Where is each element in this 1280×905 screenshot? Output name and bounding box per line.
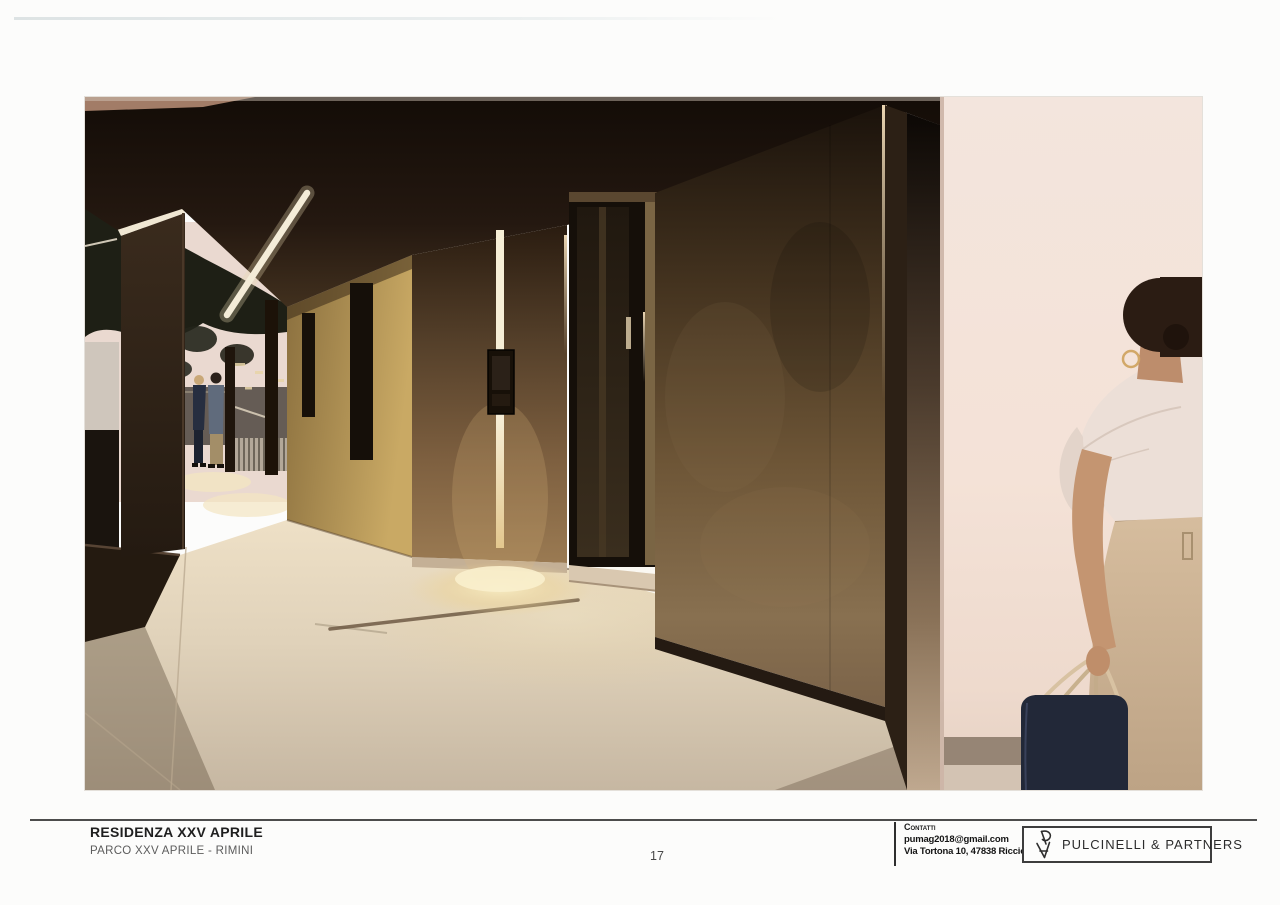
pillar-edge-highlight <box>564 235 567 405</box>
window-recess <box>302 313 315 417</box>
gate-post <box>265 300 278 475</box>
vertical-light-strip-upper <box>496 230 504 352</box>
intercom-panel <box>488 350 514 414</box>
project-subtitle: PARCO XXV APRILE - RIMINI <box>90 845 263 857</box>
left-dark-hedge <box>85 430 119 550</box>
panel-texture <box>700 487 870 607</box>
panel-side-face <box>885 105 907 790</box>
footer-divider <box>30 819 1257 821</box>
floor-light-pool <box>203 493 291 517</box>
light-pool-core <box>455 566 545 592</box>
distant-person-male <box>208 373 224 469</box>
navy-bag <box>1021 695 1128 790</box>
page-number: 17 <box>622 849 692 863</box>
pulcinelli-monogram-icon <box>1033 830 1055 860</box>
studio-logo: PULCINELLI & PARTNERS <box>1022 826 1212 863</box>
panel-texture <box>770 222 870 392</box>
panel-texture <box>665 302 785 492</box>
scan-artifact-line <box>14 17 784 20</box>
scan-top-edge <box>85 97 940 101</box>
window-recess <box>350 283 373 460</box>
floor-light-pool <box>175 472 251 492</box>
project-title: RESIDENZA XXV APRILE <box>90 824 263 840</box>
gate-post <box>225 347 235 472</box>
entry-door <box>569 192 657 567</box>
left-garden-panel <box>85 342 119 434</box>
woman-hand <box>1086 646 1110 676</box>
white-wall-seam <box>940 97 944 790</box>
vertical-light-strip-lower <box>496 412 504 548</box>
panel-reveal-gap <box>907 113 940 790</box>
studio-name: PULCINELLI & PARTNERS <box>1062 837 1243 852</box>
left-pillar <box>121 213 185 557</box>
hair-bun-knot <box>1163 324 1189 350</box>
title-block: RESIDENZA XXV APRILE PARCO XXV APRILE - … <box>90 824 263 857</box>
architectural-rendering <box>85 97 1202 790</box>
scanned-page: RESIDENZA XXV APRILE PARCO XXV APRILE - … <box>0 0 1280 905</box>
rendering-scene <box>85 97 1202 790</box>
